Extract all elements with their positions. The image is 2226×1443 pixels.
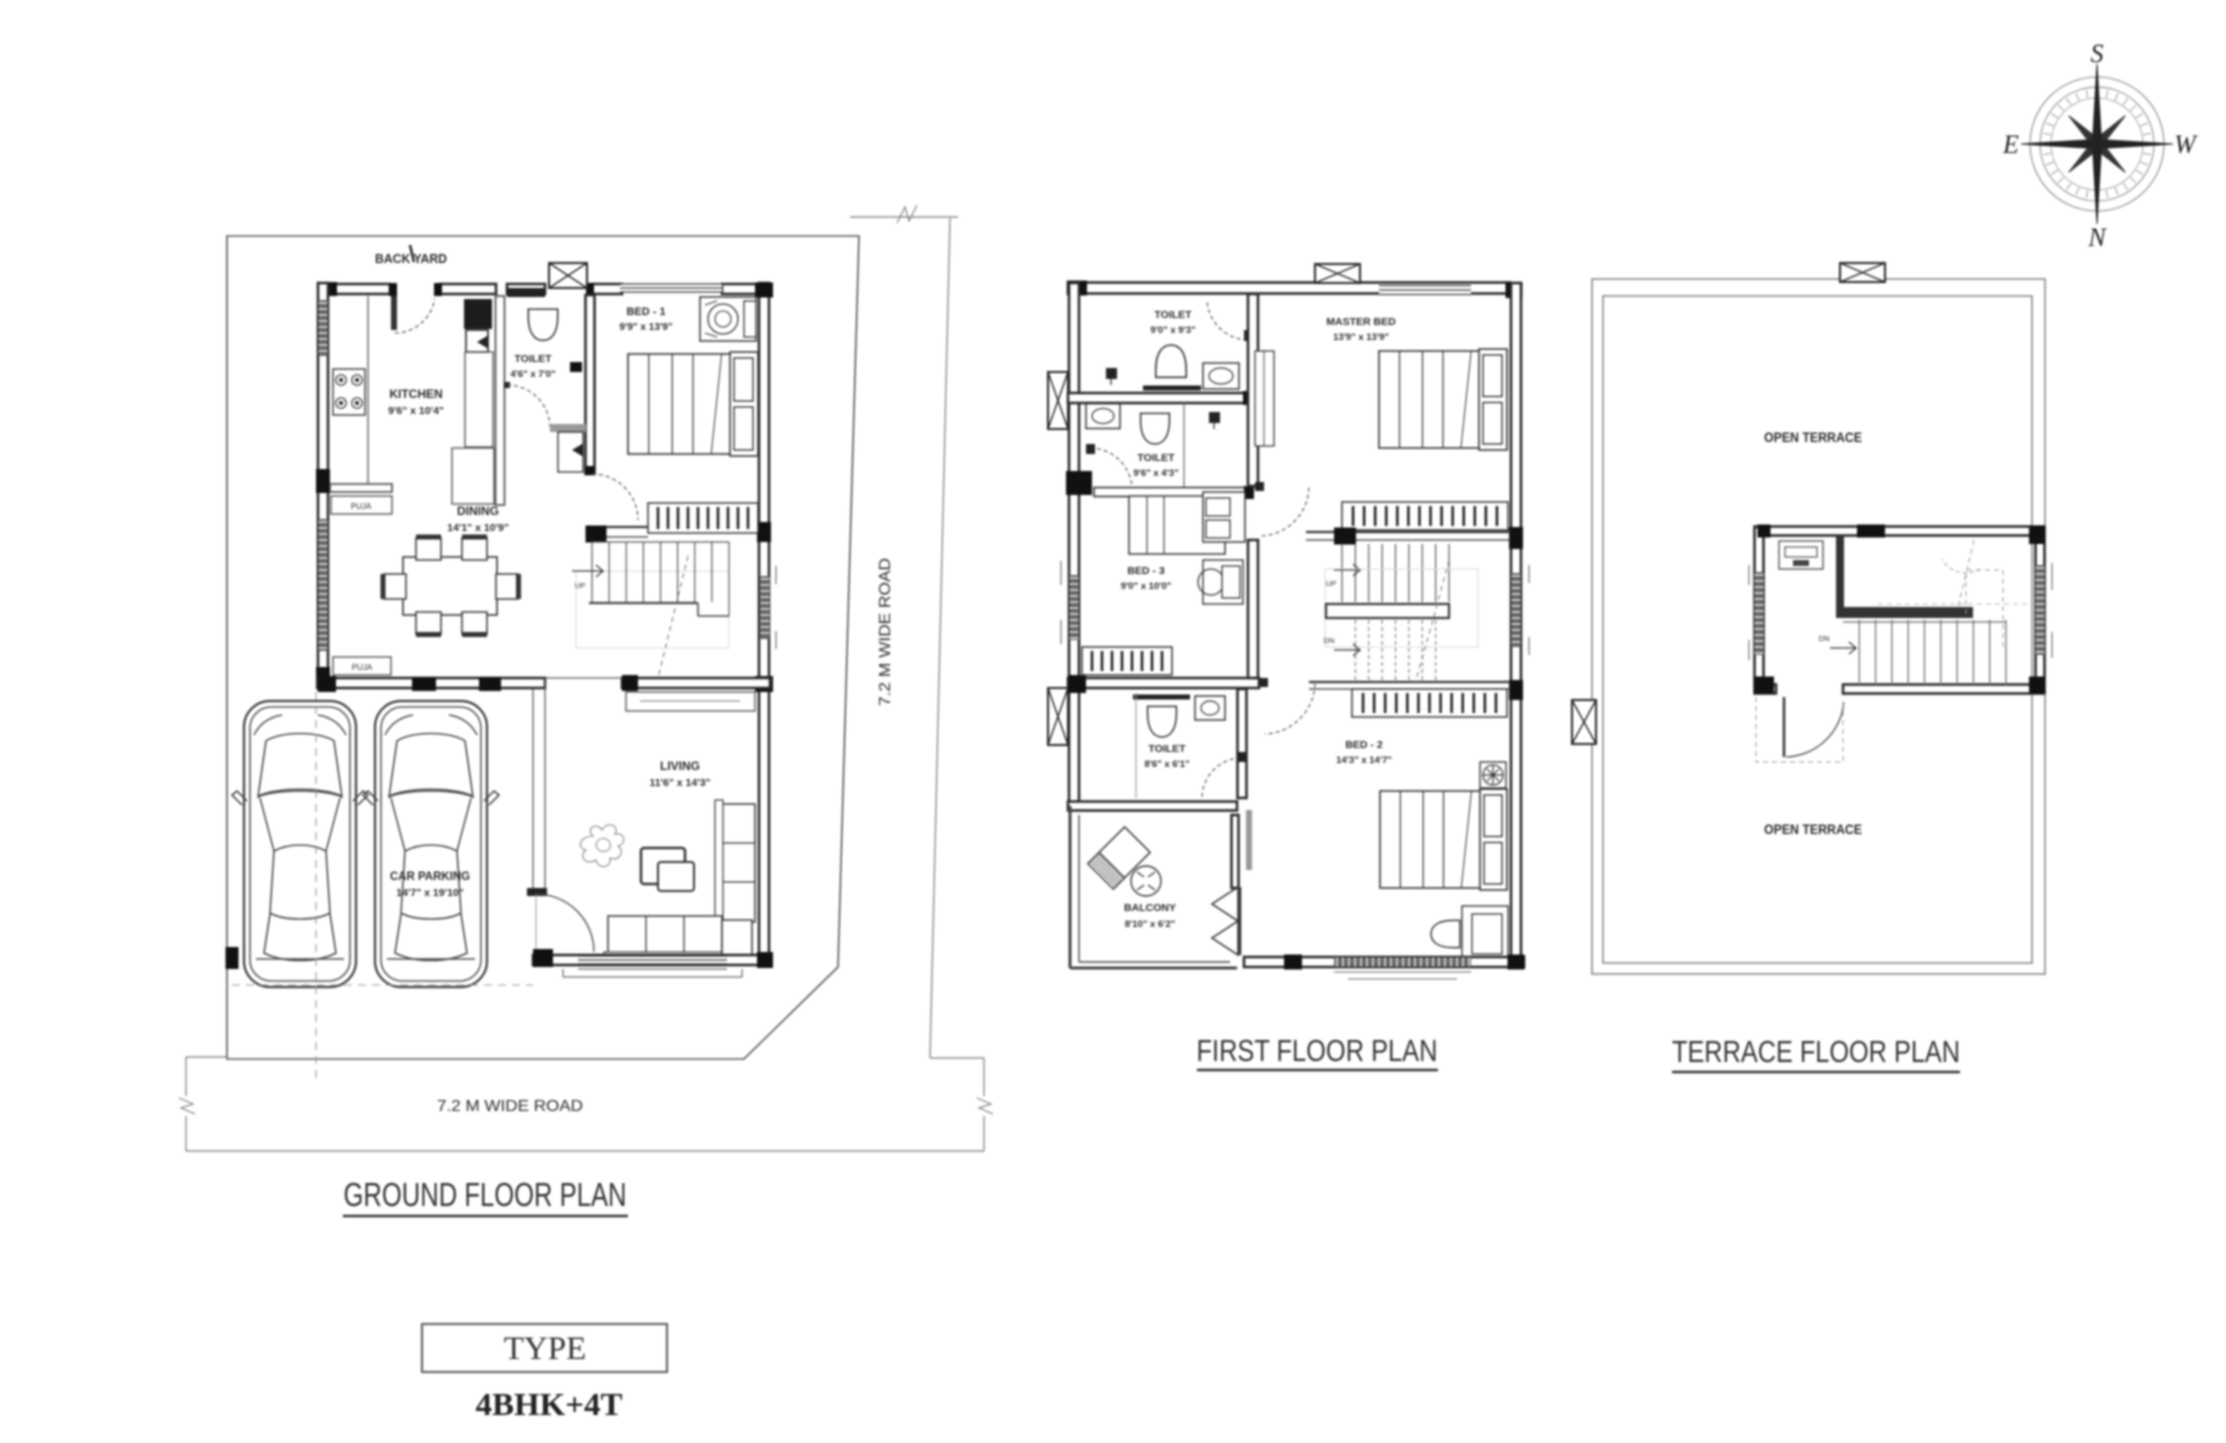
svg-text:7.2 M WIDE ROAD: 7.2 M WIDE ROAD	[437, 1098, 583, 1115]
svg-text:TERRACE FLOOR PLAN: TERRACE FLOOR PLAN	[1672, 1034, 1960, 1069]
svg-text:PUJA: PUJA	[351, 502, 372, 511]
svg-text:PUJA: PUJA	[352, 663, 373, 672]
svg-text:11'6" x 14'3": 11'6" x 14'3"	[649, 777, 710, 789]
svg-text:9'6" x 10'4": 9'6" x 10'4"	[388, 405, 444, 417]
svg-text:BED - 2: BED - 2	[1345, 739, 1383, 751]
svg-text:DN: DN	[1324, 636, 1335, 645]
svg-text:MASTER BED: MASTER BED	[1326, 316, 1396, 328]
svg-text:BALCONY: BALCONY	[1124, 902, 1176, 914]
svg-text:CAR PARKING: CAR PARKING	[390, 871, 470, 883]
svg-text:14'3" x 14'7": 14'3" x 14'7"	[1336, 755, 1392, 766]
svg-text:LIVING: LIVING	[660, 759, 700, 773]
svg-text:14'7" x 19'10": 14'7" x 19'10"	[396, 887, 464, 899]
svg-text:S: S	[2091, 39, 2104, 68]
svg-text:TOILET: TOILET	[1137, 452, 1175, 464]
svg-text:9'6" x 4'3": 9'6" x 4'3"	[1133, 468, 1178, 479]
svg-text:GROUND FLOOR PLAN: GROUND FLOOR PLAN	[344, 1176, 627, 1213]
svg-text:BED - 1: BED - 1	[626, 306, 665, 318]
svg-text:TYPE: TYPE	[504, 1331, 587, 1367]
svg-text:N: N	[2087, 223, 2107, 252]
svg-text:E: E	[2002, 130, 2019, 159]
svg-text:BED - 3: BED - 3	[1127, 565, 1165, 577]
svg-text:9'9" x 13'9": 9'9" x 13'9"	[619, 322, 672, 333]
svg-text:TOILET: TOILET	[1148, 743, 1186, 755]
svg-text:9'0" x 10'0": 9'0" x 10'0"	[1121, 581, 1172, 592]
svg-text:4'6" x 7'0": 4'6" x 7'0"	[510, 369, 555, 380]
svg-text:FIRST FLOOR PLAN: FIRST FLOOR PLAN	[1197, 1033, 1438, 1068]
svg-text:OPEN TERRACE: OPEN TERRACE	[1764, 430, 1862, 445]
svg-text:8'10" x 6'2": 8'10" x 6'2"	[1125, 919, 1176, 930]
svg-text:W: W	[2174, 130, 2198, 159]
svg-text:OPEN TERRACE: OPEN TERRACE	[1764, 822, 1862, 837]
svg-text:UP: UP	[1326, 579, 1336, 588]
svg-text:TOILET: TOILET	[1154, 309, 1192, 321]
svg-text:8'6" x 6'1": 8'6" x 6'1"	[1144, 759, 1189, 770]
svg-text:KITCHEN: KITCHEN	[389, 387, 442, 401]
svg-text:4BHK+4T: 4BHK+4T	[476, 1386, 623, 1422]
svg-text:14'1" x 10'9": 14'1" x 10'9"	[447, 522, 509, 534]
svg-text:TOILET: TOILET	[514, 353, 552, 365]
svg-text:DINING: DINING	[457, 504, 499, 518]
svg-text:DN: DN	[1819, 634, 1830, 643]
svg-text:UP: UP	[575, 581, 585, 590]
svg-text:7.2 M WIDE ROAD: 7.2 M WIDE ROAD	[877, 558, 894, 706]
svg-text:13'9" x 13'9": 13'9" x 13'9"	[1333, 332, 1389, 343]
svg-text:9'0" x 9'3": 9'0" x 9'3"	[1150, 325, 1195, 336]
